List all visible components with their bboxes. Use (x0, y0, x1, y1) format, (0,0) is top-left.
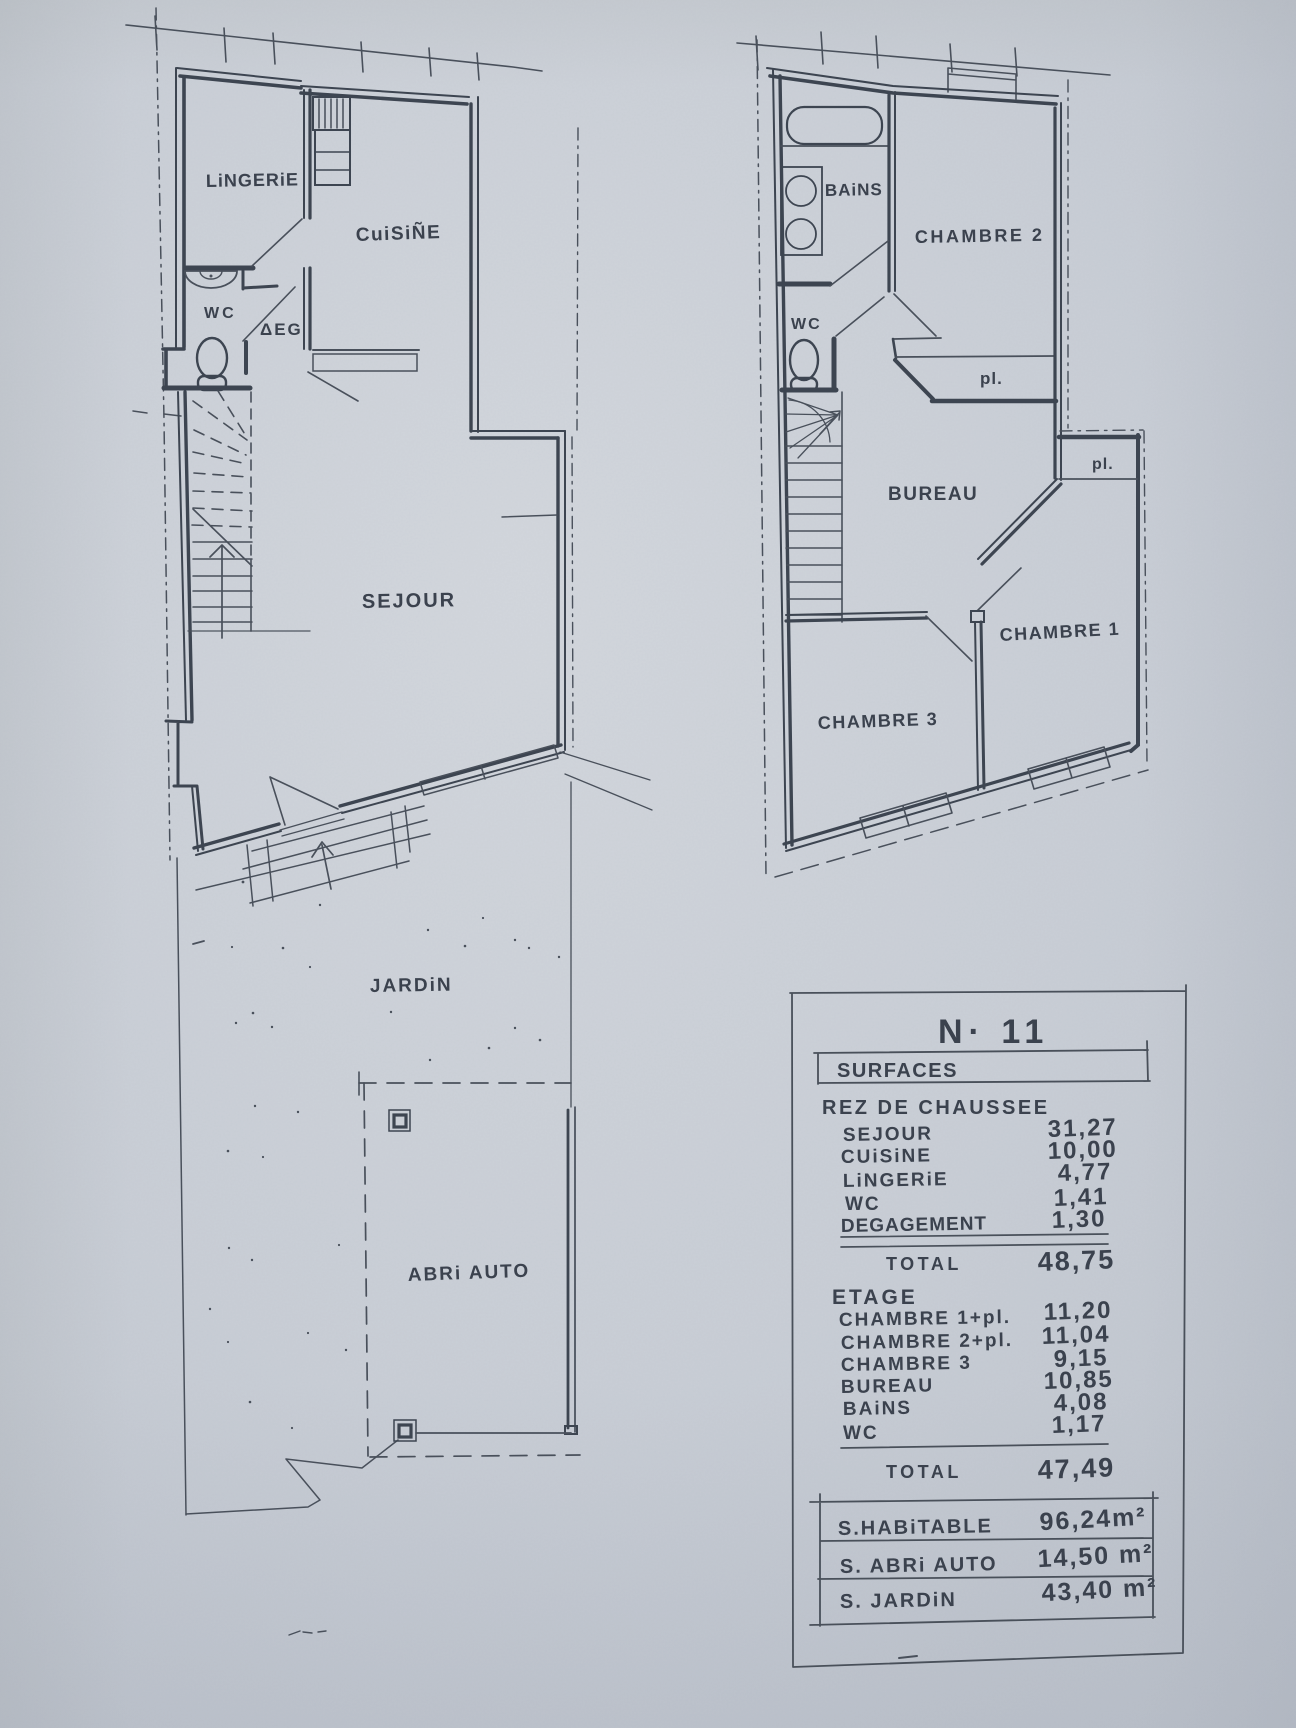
svg-text:CHAMBRE 3: CHAMBRE 3 (841, 1353, 972, 1376)
svg-text:CUiSiNE: CUiSiNE (841, 1145, 932, 1168)
svg-text:N· 11: N· 11 (938, 1013, 1049, 1051)
svg-text:CHAMBRE 2: CHAMBRE 2 (915, 225, 1045, 247)
svg-text:ΔEG: ΔEG (260, 320, 303, 339)
svg-text:S. JARDiN: S. JARDiN (840, 1589, 957, 1613)
svg-text:SEJOUR: SEJOUR (362, 589, 457, 613)
svg-text:ETAGE: ETAGE (832, 1286, 918, 1309)
svg-text:S. ABRi AUTO: S. ABRi AUTO (840, 1553, 998, 1578)
svg-text:S.HABiTABLE: S.HABiTABLE (838, 1515, 993, 1540)
svg-text:WC: WC (204, 305, 237, 322)
svg-text:1,17: 1,17 (1051, 1410, 1107, 1439)
svg-text:BAiNS: BAiNS (825, 180, 883, 200)
svg-text:TOTAL: TOTAL (886, 1462, 962, 1482)
svg-text:CHAMBRE 2+pl.: CHAMBRE 2+pl. (841, 1330, 1014, 1354)
svg-text:BAiNS: BAiNS (843, 1398, 912, 1420)
svg-text:TOTAL: TOTAL (886, 1254, 962, 1274)
svg-text:WC: WC (845, 1194, 881, 1215)
svg-text:LiNGERiE: LiNGERiE (206, 169, 299, 191)
svg-text:CHAMBRE 1+pl.: CHAMBRE 1+pl. (839, 1307, 1012, 1331)
svg-text:pl.: pl. (980, 369, 1003, 388)
svg-text:CuiSiÑE: CuiSiÑE (355, 221, 441, 246)
svg-text:96,24m²: 96,24m² (1039, 1503, 1147, 1537)
svg-text:SURFACES: SURFACES (837, 1060, 958, 1082)
svg-text:pl.: pl. (1092, 456, 1114, 473)
svg-text:48,75: 48,75 (1037, 1244, 1116, 1277)
svg-text:1,30: 1,30 (1051, 1205, 1107, 1234)
svg-text:WC: WC (791, 316, 822, 333)
svg-text:47,49: 47,49 (1037, 1452, 1116, 1485)
svg-text:CHAMBRE 3: CHAMBRE 3 (817, 709, 938, 733)
svg-text:JARDiN: JARDiN (370, 975, 453, 997)
svg-text:BUREAU: BUREAU (841, 1375, 935, 1398)
svg-text:REZ DE CHAUSSEE: REZ DE CHAUSSEE (822, 1097, 1050, 1119)
svg-text:WC: WC (843, 1423, 879, 1444)
svg-text:LiNGERiE: LiNGERiE (843, 1169, 949, 1192)
svg-text:DEGAGEMENT: DEGAGEMENT (841, 1213, 988, 1237)
svg-text:SEJOUR: SEJOUR (843, 1123, 933, 1146)
svg-text:BUREAU: BUREAU (888, 484, 978, 505)
svg-text:ABRi AUTO: ABRi AUTO (407, 1261, 530, 1286)
